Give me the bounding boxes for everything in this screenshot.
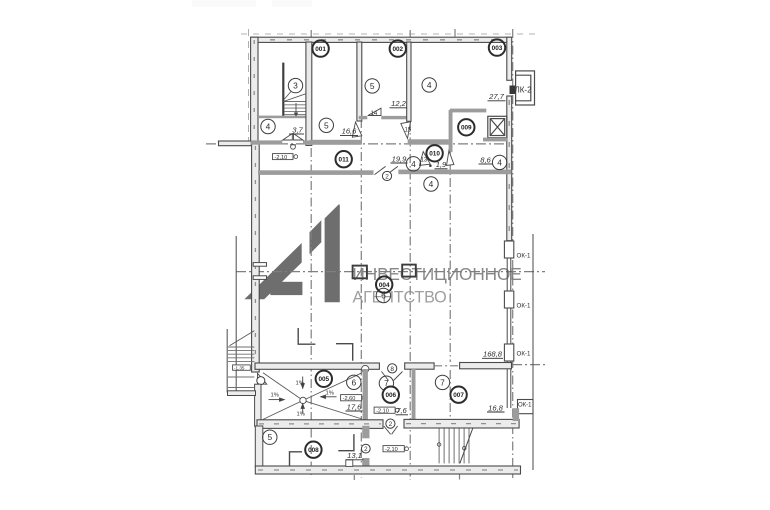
- svg-text:АГЕНТСТВО: АГЕНТСТВО: [353, 288, 447, 306]
- svg-text:4: 4: [266, 122, 271, 132]
- svg-text:14: 14: [371, 111, 378, 117]
- svg-text:ЛК-2: ЛК-2: [515, 86, 533, 95]
- svg-text:17,6: 17,6: [347, 402, 363, 411]
- svg-text:2: 2: [364, 446, 368, 453]
- svg-text:13: 13: [421, 158, 428, 164]
- svg-text:1%: 1%: [271, 393, 279, 399]
- svg-text:3: 3: [293, 81, 298, 91]
- svg-text:-2,10: -2,10: [385, 447, 398, 453]
- svg-text:15: 15: [405, 128, 412, 134]
- svg-text:1%: 1%: [326, 391, 334, 397]
- svg-text:004: 004: [379, 282, 390, 289]
- svg-text:5: 5: [267, 432, 272, 442]
- svg-text:8,6: 8,6: [480, 155, 491, 164]
- svg-text:5: 5: [370, 81, 375, 91]
- svg-text:1%: 1%: [297, 412, 305, 418]
- svg-text:4: 4: [427, 80, 432, 90]
- svg-text:-1,35: -1,35: [234, 366, 245, 371]
- svg-text:12,2: 12,2: [391, 99, 407, 108]
- svg-text:2: 2: [385, 174, 389, 181]
- svg-text:ОК-1: ОК-1: [517, 253, 531, 260]
- svg-text:4: 4: [411, 159, 416, 169]
- svg-text:ОК-1: ОК-1: [517, 303, 531, 310]
- svg-text:3,7: 3,7: [292, 125, 303, 134]
- svg-text:009: 009: [461, 125, 472, 132]
- svg-text:19,9: 19,9: [392, 154, 408, 163]
- svg-text:1%: 1%: [296, 381, 304, 387]
- svg-text:ОК-1: ОК-1: [518, 402, 532, 408]
- svg-text:27,7: 27,7: [488, 92, 505, 101]
- svg-text:16,6: 16,6: [342, 127, 358, 136]
- svg-text:5: 5: [324, 120, 329, 130]
- svg-text:168,8: 168,8: [483, 350, 503, 359]
- svg-text:-2,10: -2,10: [275, 155, 288, 161]
- svg-text:-2,60: -2,60: [343, 396, 356, 402]
- svg-text:005: 005: [318, 376, 329, 383]
- svg-text:006: 006: [385, 392, 396, 399]
- svg-text:ОК-1: ОК-1: [517, 351, 531, 358]
- svg-text:8: 8: [390, 366, 394, 373]
- svg-text:7,6: 7,6: [396, 406, 407, 415]
- svg-text:001: 001: [315, 46, 326, 53]
- svg-text:007: 007: [453, 392, 464, 399]
- svg-text:008: 008: [308, 447, 319, 454]
- svg-text:4: 4: [497, 157, 502, 167]
- svg-text:-2,10: -2,10: [376, 409, 389, 415]
- svg-text:2: 2: [389, 421, 393, 428]
- svg-text:7: 7: [440, 377, 445, 387]
- svg-text:16,8: 16,8: [488, 403, 504, 412]
- svg-text:13,1: 13,1: [347, 451, 362, 460]
- svg-text:011: 011: [339, 157, 350, 164]
- svg-text:4: 4: [429, 179, 434, 189]
- svg-text:6: 6: [351, 377, 356, 387]
- svg-text:010: 010: [429, 151, 440, 158]
- svg-text:003: 003: [492, 45, 503, 52]
- svg-text:002: 002: [392, 46, 403, 53]
